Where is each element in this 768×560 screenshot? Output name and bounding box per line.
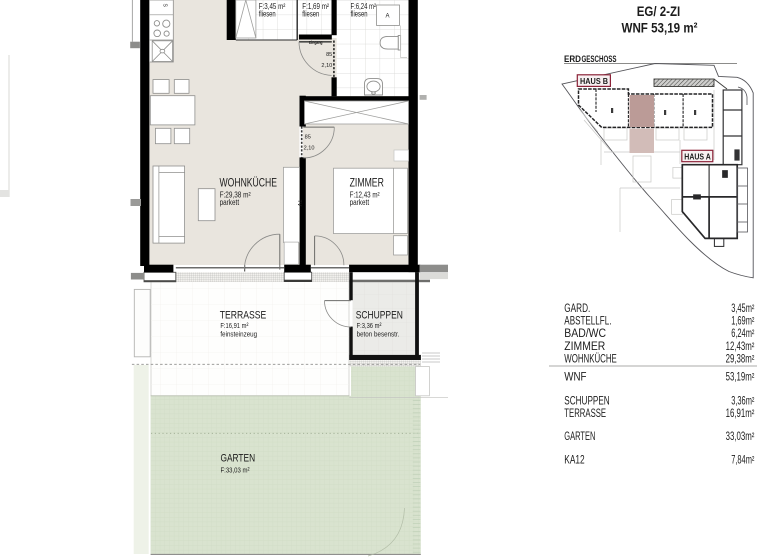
svg-text:BAD/WC: BAD/WC <box>564 328 606 340</box>
svg-text:TV: TV <box>296 200 302 207</box>
svg-text:TERRASSE: TERRASSE <box>220 309 267 321</box>
svg-text:33,03m²: 33,03m² <box>726 431 755 443</box>
svg-text:85: 85 <box>326 52 332 58</box>
svg-text:EG/ 2-ZI: EG/ 2-ZI <box>637 4 681 20</box>
svg-text:16,91m²: 16,91m² <box>726 408 755 420</box>
svg-text:53,19m²: 53,19m² <box>726 371 755 383</box>
svg-text:GARD.: GARD. <box>564 303 590 315</box>
svg-text:1,69m²: 1,69m² <box>731 316 754 328</box>
svg-text:WOHNKÜCHE: WOHNKÜCHE <box>564 353 617 365</box>
svg-text:2,10: 2,10 <box>304 146 315 152</box>
svg-text:feinsteinzeug: feinsteinzeug <box>220 330 257 339</box>
svg-text:F:33,03 m²: F:33,03 m² <box>221 465 250 474</box>
svg-text:WNF: WNF <box>564 371 586 383</box>
svg-text:beton besenstr.: beton besenstr. <box>357 330 400 339</box>
svg-text:ZIMMER: ZIMMER <box>564 341 605 353</box>
svg-text:SCHUPPEN: SCHUPPEN <box>356 310 403 322</box>
svg-text:HAUS A: HAUS A <box>684 151 711 161</box>
svg-text:fliesen: fliesen <box>259 10 276 19</box>
svg-text:SCHUPPEN: SCHUPPEN <box>564 395 609 407</box>
svg-text:A: A <box>386 14 390 20</box>
svg-text:7,84m²: 7,84m² <box>731 454 754 466</box>
svg-text:parkett: parkett <box>220 198 240 207</box>
svg-text:3,36m²: 3,36m² <box>731 395 754 407</box>
svg-text:6,24m²: 6,24m² <box>731 328 754 340</box>
svg-text:parkett: parkett <box>350 198 370 207</box>
svg-text:KA12: KA12 <box>564 454 584 466</box>
svg-text:fliesen: fliesen <box>351 10 368 19</box>
svg-text:85: 85 <box>305 135 311 141</box>
svg-text:fliesen: fliesen <box>302 10 319 19</box>
svg-text:ERD: ERD <box>564 54 581 64</box>
svg-text:GESCHOSS: GESCHOSS <box>582 54 617 64</box>
svg-text:WOHNKÜCHE: WOHNKÜCHE <box>220 176 278 190</box>
svg-text:WNF 53,19 m²: WNF 53,19 m² <box>622 21 698 37</box>
svg-text:12,43m²: 12,43m² <box>726 341 755 353</box>
svg-text:29,38m²: 29,38m² <box>726 353 755 365</box>
svg-text:Eingang: Eingang <box>309 40 323 45</box>
svg-text:ABSTELLFL.: ABSTELLFL. <box>564 316 611 328</box>
svg-text:TERRASSE: TERRASSE <box>564 408 606 420</box>
svg-text:3,45m²: 3,45m² <box>731 303 754 315</box>
svg-text:GARTEN: GARTEN <box>564 431 595 443</box>
svg-text:GARTEN: GARTEN <box>221 453 256 465</box>
svg-text:ZIMMER: ZIMMER <box>350 176 384 190</box>
svg-text:2,10: 2,10 <box>321 63 332 69</box>
svg-text:HAUS B: HAUS B <box>580 76 608 86</box>
